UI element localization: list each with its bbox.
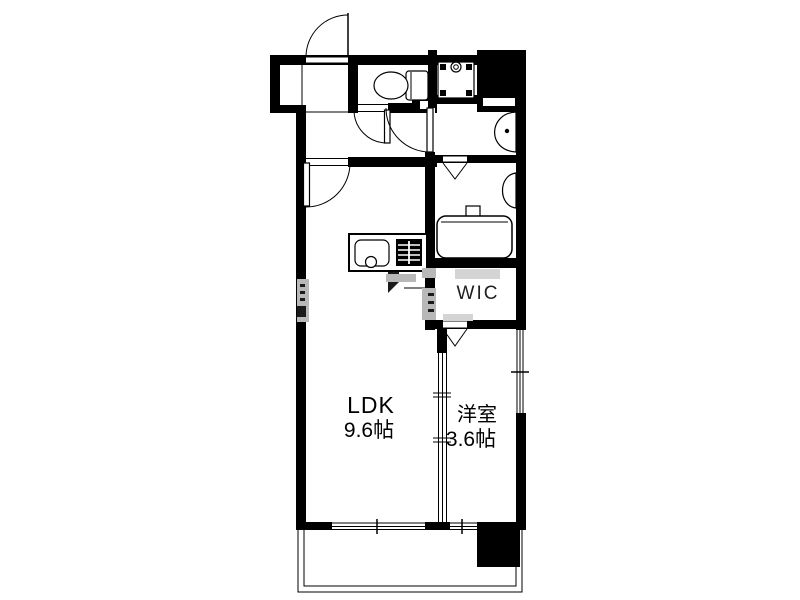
- washing-machine-pan-icon: [438, 62, 474, 98]
- watermark-fragment: [300, 298, 305, 301]
- bathroom-counter-icon: [503, 173, 517, 208]
- watermark-fragment: [300, 284, 305, 287]
- openings: [302, 57, 390, 166]
- wall-bottom-left: [296, 522, 332, 530]
- wic-door-opening: [443, 322, 467, 328]
- entrance-step-line: [302, 63, 350, 112]
- hall-swing-door-icon: [304, 163, 351, 207]
- watermark-fragment: [455, 269, 500, 279]
- entrance-swing-door-icon: [306, 13, 348, 57]
- wall-washroom-bath: [425, 155, 524, 163]
- hall-ldk-opening-lines: [306, 159, 350, 166]
- floor-plan-canvas: LDK 9.6帖 洋室 3.6帖 WIC: [0, 0, 800, 600]
- wall-right-lower: [516, 413, 526, 530]
- bathtub-icon: [437, 216, 512, 258]
- window-right-icon: [511, 330, 529, 413]
- window-bottom-ldk-icon: [332, 519, 425, 534]
- balcony: [298, 522, 522, 592]
- bathroom-folding-door-icon: [443, 163, 467, 179]
- window-bottom-western-icon: [450, 519, 477, 534]
- floor-plan: LDK 9.6帖 洋室 3.6帖 WIC: [0, 0, 800, 600]
- watermark-fragment: [443, 314, 473, 321]
- wall-entrance-left: [270, 55, 280, 113]
- balcony-pillar: [477, 524, 520, 567]
- wall-bath-wic: [425, 258, 524, 268]
- wall-wic-western: [425, 320, 524, 329]
- toilet-swing-door-icon: [354, 110, 390, 143]
- wic-label: WIC: [457, 283, 500, 304]
- watermark-fragment: [297, 306, 306, 317]
- watermark-fragment: [428, 301, 434, 304]
- ldk-label: LDK: [347, 392, 395, 418]
- washbasin-icon: [495, 112, 516, 152]
- ldk-size-label: 9.6帖: [344, 419, 394, 442]
- watermark-fragment: [422, 268, 436, 278]
- watermark-fragment: [386, 274, 416, 282]
- western-room-size-label: 3.6帖: [446, 428, 496, 451]
- kitchen-counter-icon: [349, 234, 427, 271]
- room-labels: LDK 9.6帖 洋室 3.6帖 WIC: [344, 283, 500, 451]
- wall-bottom-mid: [425, 522, 450, 530]
- watermark-fragment: [428, 309, 434, 312]
- gas-stove-icon: [396, 239, 422, 266]
- toilet-icon: [374, 71, 428, 100]
- wall-right-upper: [516, 108, 526, 330]
- bath-door-opening: [443, 157, 467, 162]
- entrance-door-opening: [306, 57, 348, 64]
- kitchen-sink-icon: [355, 240, 389, 268]
- wall-hall-ldk: [348, 157, 437, 167]
- western-room-label: 洋室: [457, 403, 497, 426]
- pillar-slot-window: [483, 98, 515, 106]
- watermark-fragment: [300, 291, 305, 294]
- watermark-fragment: [428, 293, 434, 296]
- bathroom-fixtures: [437, 173, 516, 258]
